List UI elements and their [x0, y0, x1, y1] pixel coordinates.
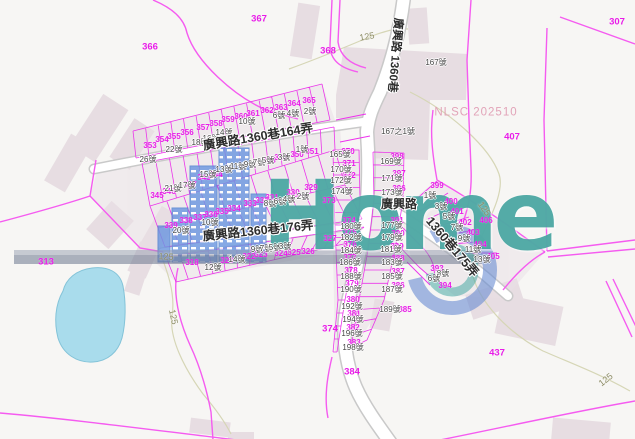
house-number-label: 172號 — [330, 177, 351, 185]
parcel-number-label: 362 — [260, 107, 273, 115]
house-number-label: 13號 — [474, 256, 491, 264]
house-number-label: 177號 — [381, 222, 402, 230]
parcel-number-label: 338 — [179, 217, 192, 225]
house-number-label: 194號 — [342, 316, 363, 324]
house-number-label: 6號 — [273, 112, 285, 120]
house-number-label: 14號 — [229, 256, 246, 264]
parcel-number-label: 366 — [142, 42, 158, 52]
parcel-number-label: 355 — [167, 133, 180, 141]
house-number-label: 7號 — [451, 224, 463, 232]
house-number-label: 1號 — [424, 192, 436, 200]
house-number-label: 187號 — [381, 286, 402, 294]
house-number-label: 196號 — [341, 330, 362, 338]
parcel-number-label: 384 — [344, 367, 360, 377]
parcel-number-label: 407 — [504, 132, 520, 142]
house-number-label: 183號 — [381, 259, 402, 267]
contour-elevation-label: 125 — [158, 252, 173, 262]
house-number-label: 2號 — [297, 193, 309, 201]
parcel-number-label: 326 — [301, 248, 314, 256]
house-number-label: 26號 — [140, 156, 157, 164]
parcel-number-label: 307 — [609, 17, 625, 27]
road-name-label: 廣興路 — [381, 198, 417, 210]
house-number-label: 174號 — [331, 188, 352, 196]
house-number-label: 5號 — [262, 157, 274, 165]
house-number-label: 6號 — [428, 275, 440, 283]
parcel-number-label: 399 — [430, 182, 443, 190]
house-number-label: 167號 — [425, 59, 446, 67]
house-number-label: 9號 — [458, 235, 470, 243]
house-number-label: 185號 — [381, 273, 402, 281]
house-number-label: 186號 — [339, 259, 360, 267]
house-number-label: 3號 — [279, 243, 291, 251]
parcel-number-label: 406 — [479, 217, 492, 225]
parcel-number-label: 356 — [180, 129, 193, 137]
house-number-label: 3號 — [278, 154, 290, 162]
house-number-label: 198號 — [342, 344, 363, 352]
parcel-number-label: 318 — [185, 259, 198, 267]
house-number-label: 180號 — [340, 223, 361, 231]
nlsc-watermark-text: NLSC 202510 — [434, 107, 517, 119]
house-number-label: 188號 — [340, 273, 361, 281]
house-number-label: 10號 — [239, 118, 256, 126]
house-number-label: 10號 — [202, 219, 219, 227]
map-canvas[interactable]: Home NLSC 202510 36636736830731340743738… — [0, 0, 635, 439]
house-number-label: 12號 — [205, 264, 222, 272]
parcel-number-label: 357 — [196, 124, 209, 132]
contour-elevation-label: 125 — [167, 309, 179, 326]
house-number-label: 2號 — [304, 108, 316, 116]
house-number-label: 20號 — [173, 227, 190, 235]
house-number-label: 189號 — [379, 306, 400, 314]
house-number-label: 11號 — [465, 246, 481, 254]
house-number-label: 22號 — [166, 146, 183, 154]
parcel-number-label: 367 — [251, 14, 267, 24]
house-number-label: 170號 — [330, 166, 351, 174]
house-number-label: 181號 — [380, 246, 401, 254]
parcel-number-label: 327 — [323, 235, 336, 243]
house-number-label: 15號 — [200, 171, 217, 179]
house-number-label: 182號 — [340, 234, 361, 242]
parcel-number-label: 394 — [438, 282, 451, 290]
parcel-number-label: 373 — [322, 197, 335, 205]
parcel-number-label: 364 — [287, 100, 300, 108]
house-number-label: 3號 — [435, 203, 447, 211]
parcel-number-label: 374 — [322, 324, 338, 334]
house-number-label: 190號 — [340, 286, 361, 294]
house-number-label: 4號 — [287, 110, 299, 118]
parcel-number-label: 329 — [304, 184, 317, 192]
house-number-label: 17號 — [179, 182, 196, 190]
house-number-label: 184號 — [340, 247, 361, 255]
parcel-number-label: 368 — [320, 46, 336, 56]
house-number-label: 192號 — [341, 303, 362, 311]
house-number-label: 5號 — [443, 213, 455, 221]
parcel-number-label: 437 — [489, 348, 505, 358]
house-number-label: 171號 — [381, 175, 402, 183]
parcel-number-label: 313 — [38, 257, 54, 267]
house-number-label: 1號 — [296, 146, 308, 154]
parcel-number-label: 359 — [221, 116, 234, 124]
house-number-label: 179號 — [381, 234, 402, 242]
parcel-number-label: 334 — [227, 205, 240, 213]
house-number-label: 4號 — [283, 196, 295, 204]
house-number-label: 169號 — [380, 158, 401, 166]
house-number-label: 165號 — [329, 151, 350, 159]
parcel-number-label: 365 — [302, 97, 315, 105]
house-number-label: 173號 — [381, 189, 402, 197]
house-number-label: 167之1號 — [381, 128, 415, 136]
